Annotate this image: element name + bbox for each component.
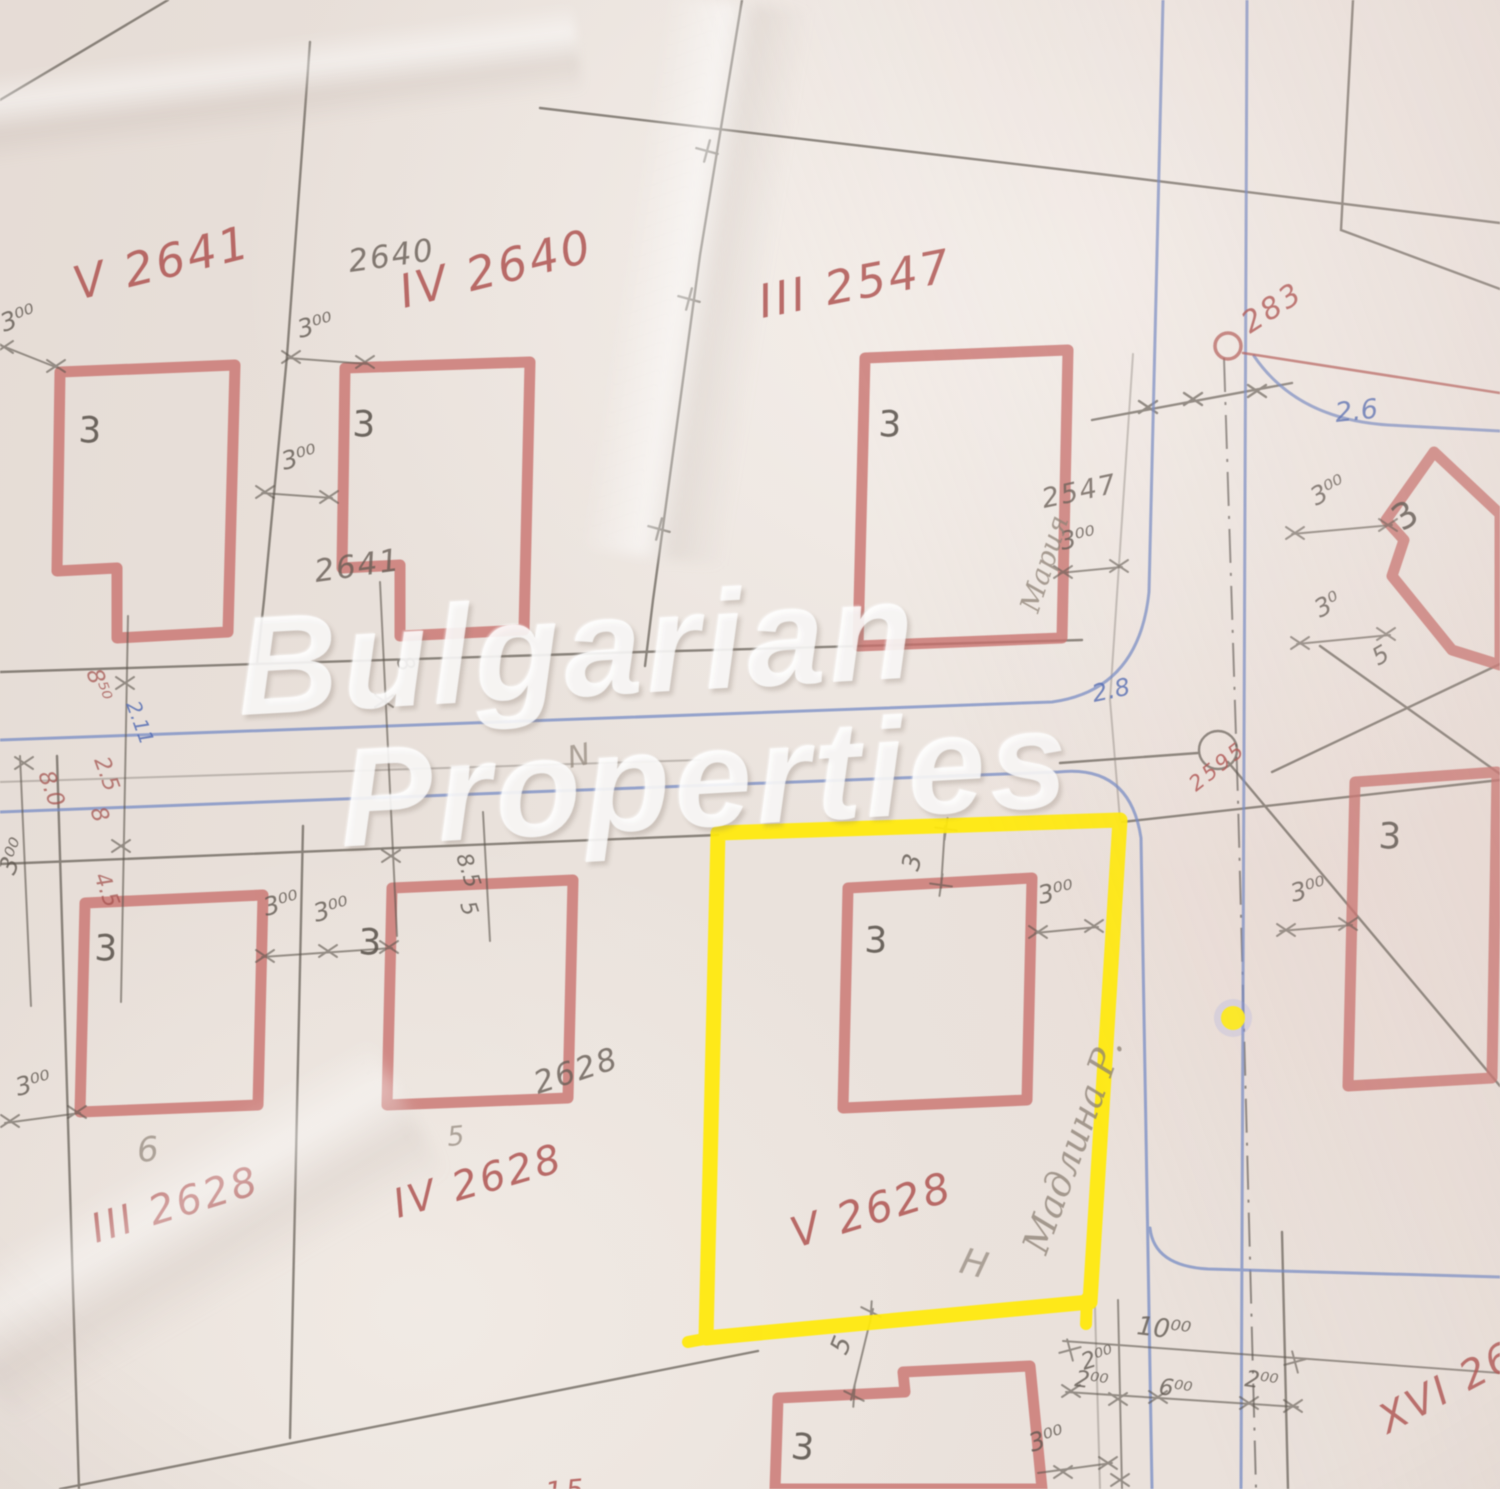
- dim-2-00-q: 2⁰⁰: [1073, 1366, 1109, 1396]
- highlight-overshoot: [688, 1336, 720, 1342]
- map-labels: V 2641IV 2640III 2547283III 2628IV 2628V…: [0, 214, 1500, 1489]
- building-outline-plot-v2641: [57, 365, 235, 638]
- pencil-label-2641: 2641: [312, 542, 403, 590]
- road-width-label-2-6: 2.6: [1333, 394, 1379, 429]
- boundary-line: [60, 1351, 758, 1489]
- cadastral-plan-scan: V 2641IV 2640III 2547283III 2628IV 2628V…: [0, 0, 1500, 1489]
- building-outline-plot-iv2640: [342, 362, 530, 636]
- pencil-label-2628: 2628: [529, 1041, 623, 1102]
- highlight-overshoot: [1086, 1298, 1087, 1324]
- red-label-15: 15: [544, 1472, 588, 1489]
- survey-line: [1272, 664, 1500, 772]
- dim-8-a: 8: [84, 803, 113, 826]
- floors-label-b2: 3: [352, 404, 376, 446]
- pencil-note-6: 6: [135, 1129, 160, 1171]
- dim-2-00-r: 2⁰⁰: [1243, 1366, 1279, 1396]
- boundary-line: [540, 108, 1500, 223]
- boundary-line: [57, 756, 79, 1489]
- road-line: [1150, 1228, 1500, 1277]
- dim-3-00-i: 3⁰⁰: [12, 1064, 54, 1101]
- boundary-line-with-ticks: [645, 0, 742, 666]
- dim-3-00-k: 3⁰⁰: [310, 890, 352, 927]
- dim-5-b4: 5: [1367, 639, 1394, 671]
- dim-3-00-l: 3⁰⁰: [1035, 874, 1076, 910]
- pencil-label-2547: 2547: [1039, 469, 1120, 515]
- dimension-marks: [0, 341, 1500, 1489]
- survey-point-circle-283: [1215, 333, 1241, 359]
- plot-label-iv-2628: IV 2628: [388, 1135, 569, 1227]
- dim-8-b: 8: [390, 653, 419, 675]
- floors-label-b3: 3: [878, 404, 902, 446]
- floors-label-b5: 3: [94, 928, 118, 970]
- dim-8-50: 8⁵⁰: [80, 665, 116, 705]
- floors-label-b9: 3: [789, 1426, 816, 1469]
- boundary-line: [1122, 780, 1500, 822]
- dim-5-c: 5: [454, 898, 482, 919]
- diagonal-survey-line: [1228, 762, 1500, 1086]
- dim-8-0: 8.0: [32, 767, 69, 810]
- floors-label-b6: 3: [358, 922, 382, 964]
- plot-label-iii-2547: III 2547: [754, 238, 957, 328]
- plot-label-v-2628: V 2628: [785, 1162, 959, 1258]
- dim-3-00-h: 3⁰⁰: [0, 834, 33, 878]
- boundary-line: [1110, 354, 1133, 820]
- plot-label-v-2641: V 2641: [68, 214, 257, 310]
- road-width-label-2-8: 2.8: [1089, 673, 1132, 708]
- boundary-line: [290, 826, 303, 1438]
- dim-3-00-c: 3⁰⁰: [278, 438, 320, 475]
- dim-3-00-j: 3⁰⁰: [260, 884, 302, 921]
- dim-3-above-b7: 3: [896, 851, 928, 874]
- dim-3-00-b: 3⁰⁰: [294, 306, 336, 343]
- pencil-note-5: 5: [446, 1121, 466, 1153]
- pencil-note-h: H: [956, 1241, 992, 1287]
- floors-label-b7: 3: [864, 920, 888, 962]
- pencil-note-n: N: [564, 737, 593, 776]
- plot-label-iii-2628: III 2628: [85, 1158, 265, 1253]
- cadastral-map-drawing: V 2641IV 2640III 2547283III 2628IV 2628V…: [0, 0, 1500, 1489]
- boundary-line: [0, 0, 168, 100]
- dim-2-5: 2.5: [88, 754, 123, 795]
- dim-3-00-g: 3⁰⁰: [1287, 870, 1329, 907]
- plot-label-xvi-26: XVI 26: [1369, 1333, 1500, 1444]
- axis-dash-dot-line: [1224, 358, 1256, 1489]
- dim-6-00: 6⁰⁰: [1157, 1374, 1193, 1404]
- survey-point-label-2595: 2595: [1184, 737, 1250, 796]
- boundary-corner-top-right: [1341, 0, 1500, 289]
- boundary-line: [1095, 1307, 1100, 1489]
- road-south-edge: [0, 835, 718, 864]
- dim-3-0-f: 3⁰: [1309, 586, 1346, 624]
- building-outline-top-right: [1386, 452, 1500, 665]
- floors-label-b8: 3: [1378, 816, 1402, 858]
- dim-10-00: 10⁰⁰: [1135, 1311, 1193, 1347]
- highlight-dot: [1221, 1006, 1245, 1030]
- dim-5-b9: 5: [825, 1332, 859, 1359]
- dim-3-00-a: 3⁰⁰: [0, 298, 40, 338]
- survey-line: [1320, 646, 1500, 774]
- building-outline-right: [1348, 772, 1497, 1086]
- building-outline-plot-v2628: [843, 878, 1032, 1108]
- dim-3-00-e: 3⁰⁰: [1305, 469, 1350, 511]
- survey-line: [1060, 753, 1198, 763]
- floors-label-b1: 3: [78, 410, 102, 452]
